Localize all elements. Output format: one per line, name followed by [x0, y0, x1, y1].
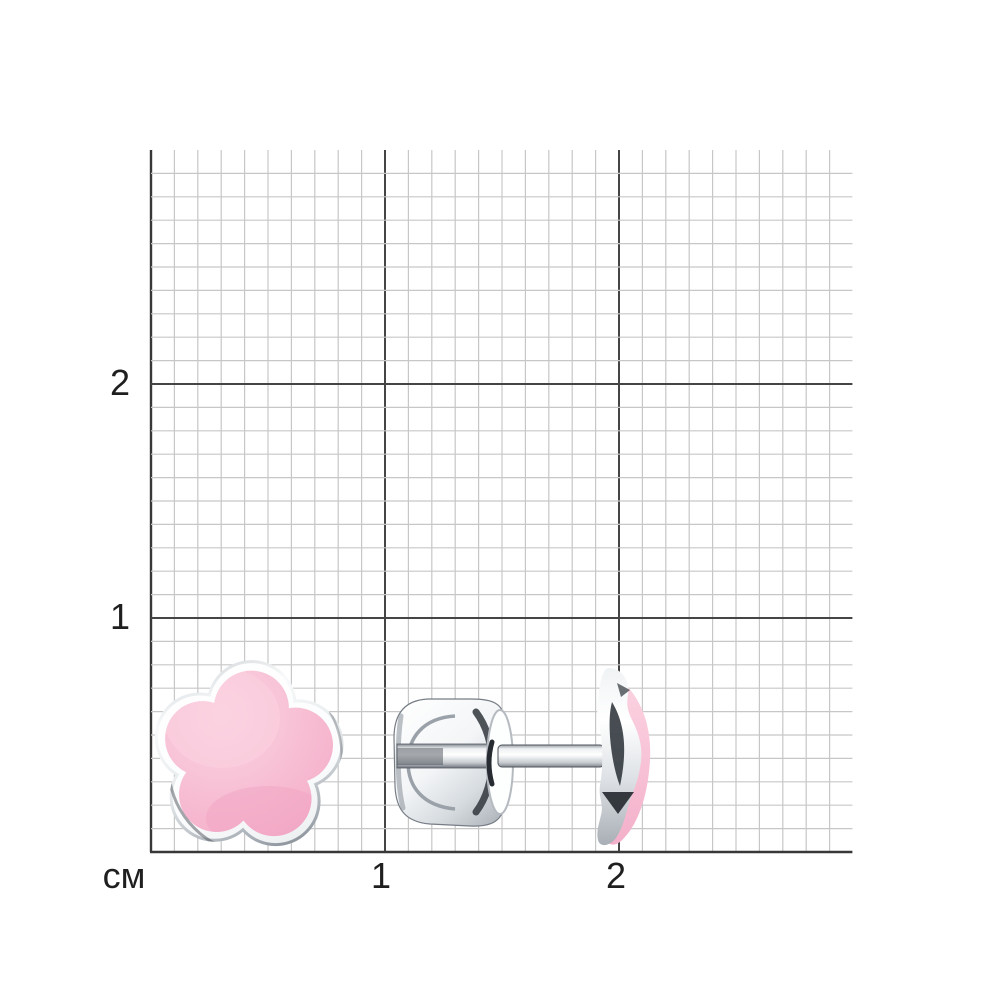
- x-axis-label-1: 1: [361, 856, 401, 896]
- y-axis-label-1: 1: [72, 597, 130, 637]
- y-axis-label-2: 2: [72, 363, 130, 403]
- measurement-scene: [0, 0, 1000, 1000]
- product-photo-canvas: 2 1 1 2 см: [0, 0, 1000, 1000]
- unit-label-cm: см: [100, 856, 148, 896]
- x-axis-label-2: 2: [596, 856, 636, 896]
- earring-post: [498, 745, 604, 767]
- earring-side-view: [394, 668, 650, 845]
